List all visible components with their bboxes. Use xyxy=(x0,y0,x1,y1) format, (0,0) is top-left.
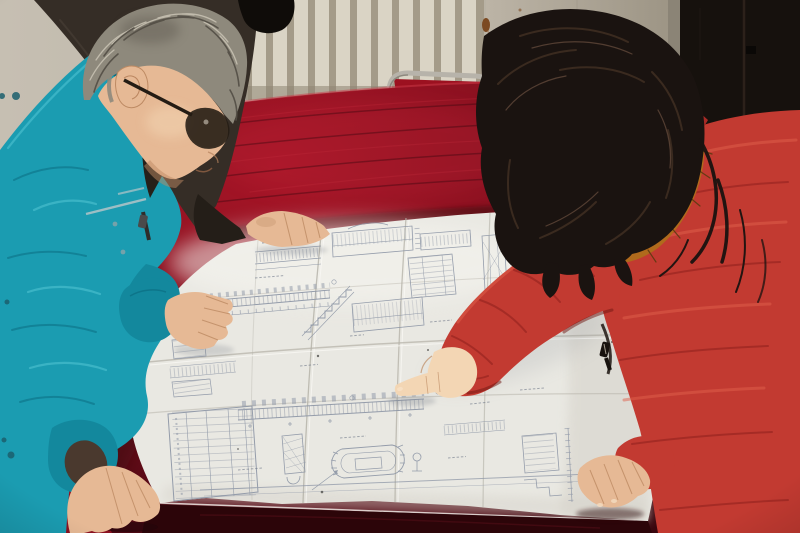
scene-canvas xyxy=(0,0,800,533)
photo-scene xyxy=(0,0,800,533)
vignette-overlay xyxy=(0,0,800,533)
